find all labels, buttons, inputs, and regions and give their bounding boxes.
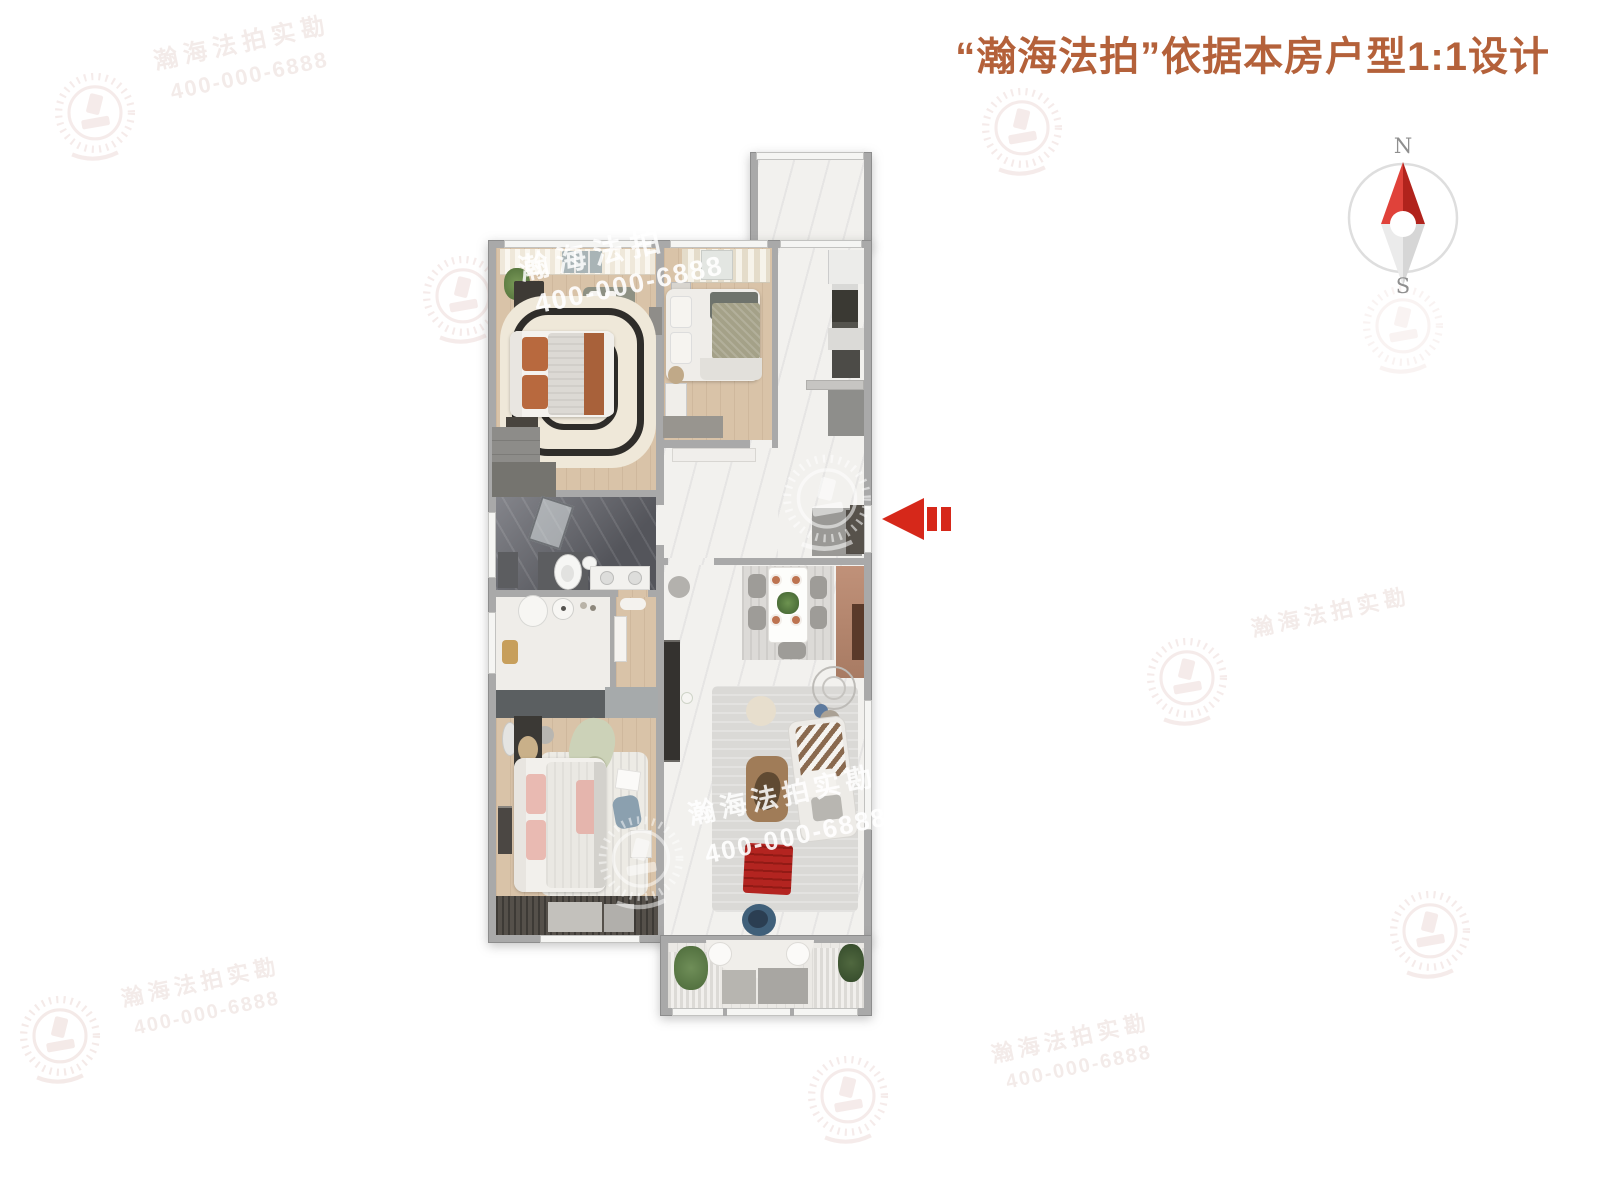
bed-pillow bbox=[522, 337, 548, 371]
kitchen-cooktop bbox=[832, 350, 860, 378]
wardrobe-bulkhead-light bbox=[605, 687, 658, 718]
gavel-wreath-logo-icon bbox=[586, 808, 696, 918]
utility-balcony-floor bbox=[758, 160, 864, 248]
tall-cabinet bbox=[828, 390, 864, 436]
kitchen-window bbox=[780, 240, 862, 248]
floor-lamp-inner bbox=[822, 676, 846, 700]
balcony-plant bbox=[838, 944, 864, 982]
gavel-wreath-logo-icon bbox=[796, 1048, 900, 1152]
kitchen-counter bbox=[828, 328, 864, 350]
bed-pillow bbox=[526, 774, 546, 814]
dining-chair bbox=[748, 574, 766, 598]
kitchen-shelf-dark bbox=[832, 284, 858, 328]
bed-fold bbox=[604, 333, 614, 415]
gavel-wreath-logo-icon bbox=[1378, 883, 1482, 987]
dining-chair bbox=[748, 606, 766, 630]
bed-pillow bbox=[670, 332, 692, 364]
bedroom2-window bbox=[670, 240, 768, 248]
south-balcony-window bbox=[672, 1008, 858, 1016]
plate bbox=[770, 614, 782, 626]
bed-headboard bbox=[510, 331, 522, 417]
bath-mat bbox=[620, 598, 646, 610]
wash-basin bbox=[518, 595, 548, 627]
planter-pouf bbox=[668, 576, 690, 598]
bathroom-door-opening bbox=[656, 505, 664, 545]
dried-plant bbox=[668, 366, 684, 384]
drawer-unit bbox=[665, 383, 687, 419]
sideboard-inner bbox=[852, 604, 864, 660]
entry-direction-arrow-icon bbox=[880, 496, 956, 542]
table-plant bbox=[777, 592, 799, 614]
page-title: “瀚海法拍”依据本房户型1:1设计 bbox=[930, 30, 1550, 84]
toiletry bbox=[580, 602, 587, 609]
gavel-wreath-logo-icon bbox=[970, 80, 1074, 184]
vanity-sink bbox=[628, 571, 642, 585]
cream-pouf bbox=[746, 696, 776, 726]
bathroom-window bbox=[488, 512, 496, 578]
plate bbox=[770, 574, 782, 586]
living-room-opening bbox=[668, 558, 714, 565]
bed-pillow bbox=[670, 296, 692, 328]
dining-chair bbox=[778, 642, 806, 659]
dining-chair bbox=[810, 576, 827, 599]
lounge-cushion bbox=[748, 910, 768, 928]
bed-pillow bbox=[526, 820, 546, 860]
gavel-wreath-logo-icon bbox=[1135, 630, 1239, 734]
bath-cabinet-left bbox=[498, 552, 518, 588]
balcony-mat bbox=[722, 970, 756, 1004]
window-mullion bbox=[723, 1008, 727, 1016]
picture-frames bbox=[498, 806, 512, 854]
bed-pillow bbox=[522, 375, 548, 409]
shower-door-opening bbox=[618, 590, 648, 597]
wardrobe-bulkhead bbox=[496, 690, 605, 718]
bed-blanket bbox=[712, 303, 760, 359]
kitchen-partition-shelf bbox=[806, 380, 864, 390]
plate bbox=[790, 614, 802, 626]
bedroom3-bay-window bbox=[540, 935, 640, 943]
entry-hall-floor bbox=[664, 448, 778, 558]
sofa-cushion bbox=[786, 942, 810, 966]
dining-chair bbox=[810, 606, 827, 629]
storage-bench bbox=[672, 448, 756, 462]
paper bbox=[615, 768, 642, 791]
bed-duvet-fold bbox=[700, 358, 762, 380]
bed-headboard bbox=[514, 758, 526, 892]
gavel-wreath-logo-icon bbox=[43, 65, 147, 169]
bed-runner bbox=[584, 333, 606, 415]
utility-balcony-window bbox=[756, 152, 864, 160]
kitchen-cabinet bbox=[828, 250, 864, 284]
vanity-sink bbox=[600, 571, 614, 585]
balcony-mat bbox=[758, 968, 808, 1004]
balcony-plant bbox=[674, 946, 708, 990]
tv-console bbox=[664, 640, 680, 762]
ghost-watermark-text: 瀚海法拍实勘 bbox=[1248, 578, 1413, 643]
stool bbox=[502, 640, 518, 664]
orchid bbox=[681, 692, 693, 704]
toiletry bbox=[590, 605, 596, 611]
dresser bbox=[492, 462, 556, 497]
window-mullion bbox=[790, 1008, 794, 1016]
faucet-dot bbox=[561, 606, 566, 611]
compass-south-label: S bbox=[1383, 274, 1423, 298]
gavel-wreath-logo-icon bbox=[8, 988, 112, 1092]
plate bbox=[790, 574, 802, 586]
toilet-seat bbox=[561, 565, 574, 582]
page: 瀚海法拍实勘 400-000-6888 瀚海法拍实勘 400-000-6888 … bbox=[0, 0, 1600, 1200]
sofa-cushion bbox=[708, 942, 732, 966]
bedroom2-door-opening bbox=[750, 440, 772, 448]
shower-window bbox=[488, 612, 496, 674]
door-leaf bbox=[614, 616, 627, 662]
gavel-wreath-logo-icon bbox=[770, 446, 884, 560]
dresser bbox=[663, 416, 723, 438]
